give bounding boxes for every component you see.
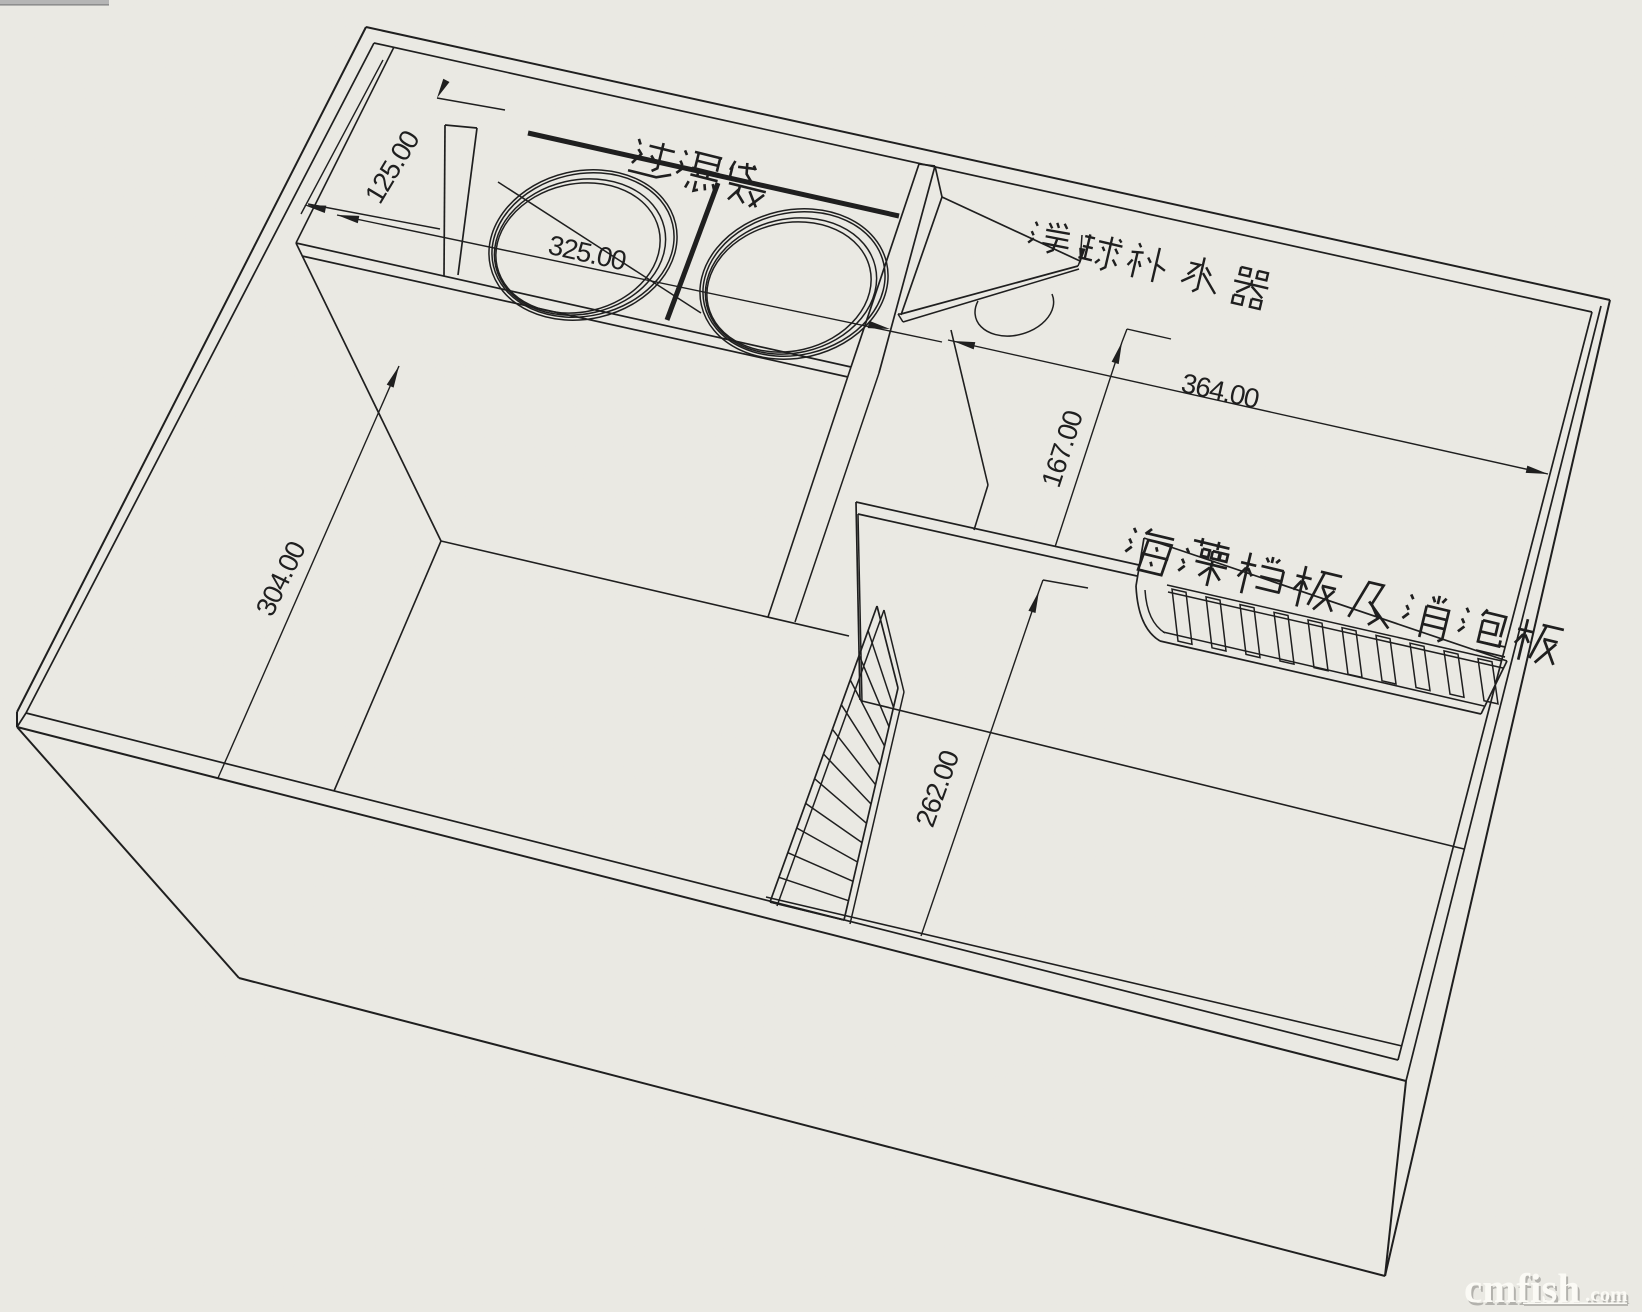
svg-text:.com: .com	[1585, 1282, 1628, 1306]
